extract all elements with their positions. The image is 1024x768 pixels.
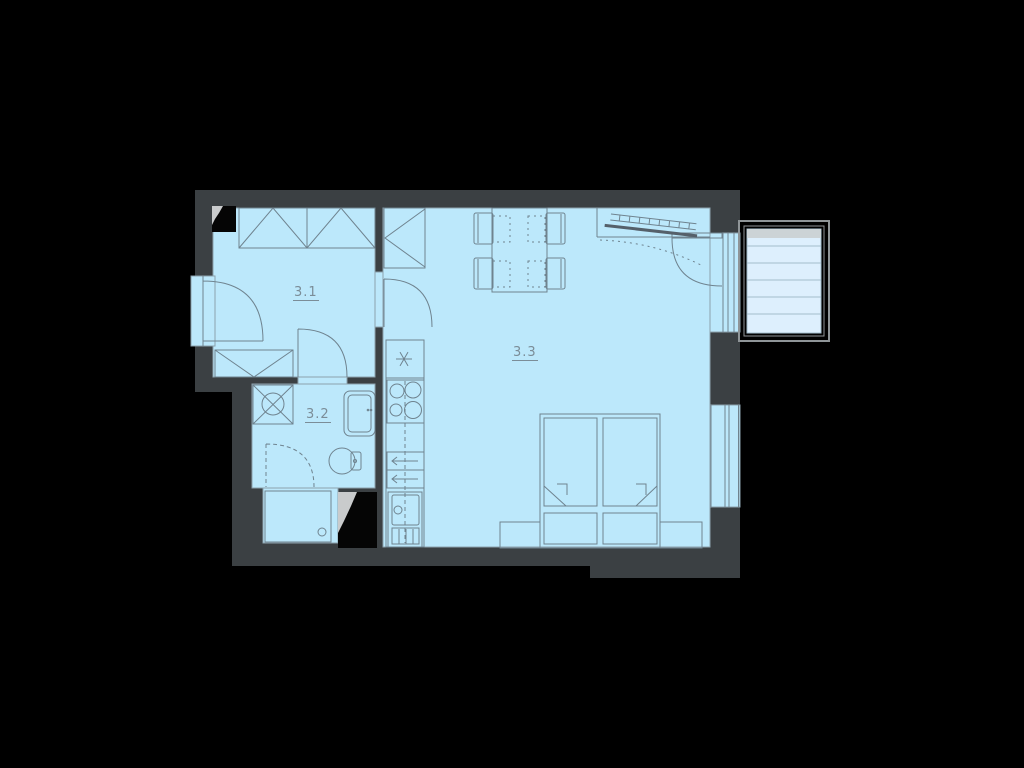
room-label-3-3: 3.3 bbox=[512, 346, 538, 361]
hall-door-opening bbox=[375, 272, 383, 327]
duct-shaft bbox=[212, 206, 236, 232]
duct-shaft bbox=[338, 492, 377, 548]
shower-niche-floor bbox=[263, 488, 338, 543]
bathroom-door-opening bbox=[298, 377, 347, 384]
balcony-door-opening bbox=[710, 233, 740, 332]
balcony-threshold bbox=[747, 229, 821, 238]
balcony bbox=[739, 221, 829, 341]
balcony-deck bbox=[747, 229, 821, 333]
floor-plan: 3.1 3.2 3.3 bbox=[0, 0, 1024, 768]
floor-plan-drawing bbox=[0, 0, 1024, 768]
room-label-3-2: 3.2 bbox=[305, 408, 331, 423]
room-label-3-1: 3.1 bbox=[293, 286, 319, 301]
